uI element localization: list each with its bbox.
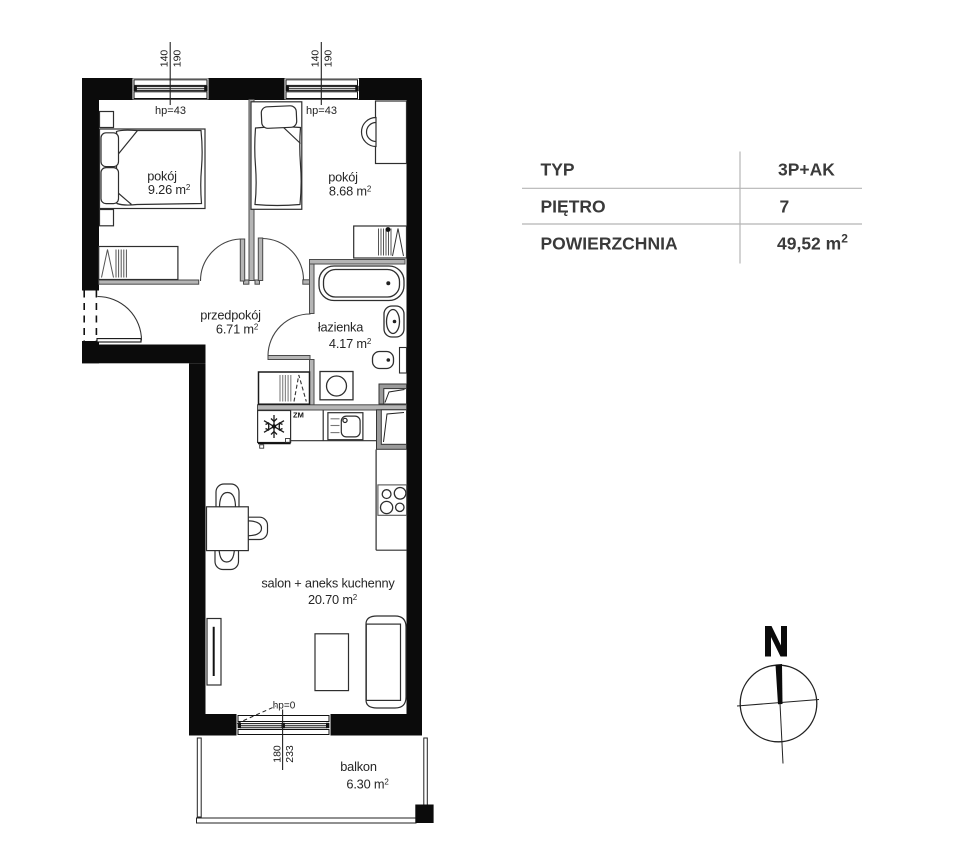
- svg-text:salon + aneks kuchenny: salon + aneks kuchenny: [261, 576, 395, 591]
- svg-text:3P+AK: 3P+AK: [778, 160, 835, 180]
- svg-text:233: 233: [284, 745, 296, 763]
- svg-text:8.68 m2: 8.68 m2: [329, 184, 372, 199]
- svg-text:łazienka: łazienka: [318, 320, 364, 335]
- svg-text:6.30 m2: 6.30 m2: [346, 777, 389, 792]
- svg-text:hp=43: hp=43: [155, 105, 186, 117]
- svg-text:TYP: TYP: [541, 160, 575, 180]
- svg-text:190: 190: [172, 50, 184, 68]
- svg-text:7: 7: [780, 197, 790, 217]
- svg-text:9.26 m2: 9.26 m2: [148, 182, 191, 197]
- svg-text:przedpokój: przedpokój: [200, 308, 261, 323]
- svg-text:140: 140: [310, 50, 322, 68]
- svg-text:49,52 m2: 49,52 m2: [777, 232, 848, 254]
- svg-text:hp=43: hp=43: [306, 105, 337, 117]
- svg-text:PIĘTRO: PIĘTRO: [541, 197, 606, 217]
- svg-text:140: 140: [159, 50, 171, 68]
- svg-text:4.17 m2: 4.17 m2: [329, 336, 372, 351]
- svg-text:6.71 m2: 6.71 m2: [216, 322, 259, 337]
- svg-text:20.70 m2: 20.70 m2: [308, 592, 358, 607]
- svg-text:190: 190: [323, 50, 335, 68]
- svg-text:pokój: pokój: [328, 170, 358, 185]
- svg-text:180: 180: [272, 745, 284, 763]
- svg-text:POWIERZCHNIA: POWIERZCHNIA: [541, 234, 678, 254]
- svg-text:hp=0: hp=0: [273, 701, 296, 712]
- svg-text:balkon: balkon: [340, 759, 377, 774]
- svg-text:ZM: ZM: [293, 411, 304, 420]
